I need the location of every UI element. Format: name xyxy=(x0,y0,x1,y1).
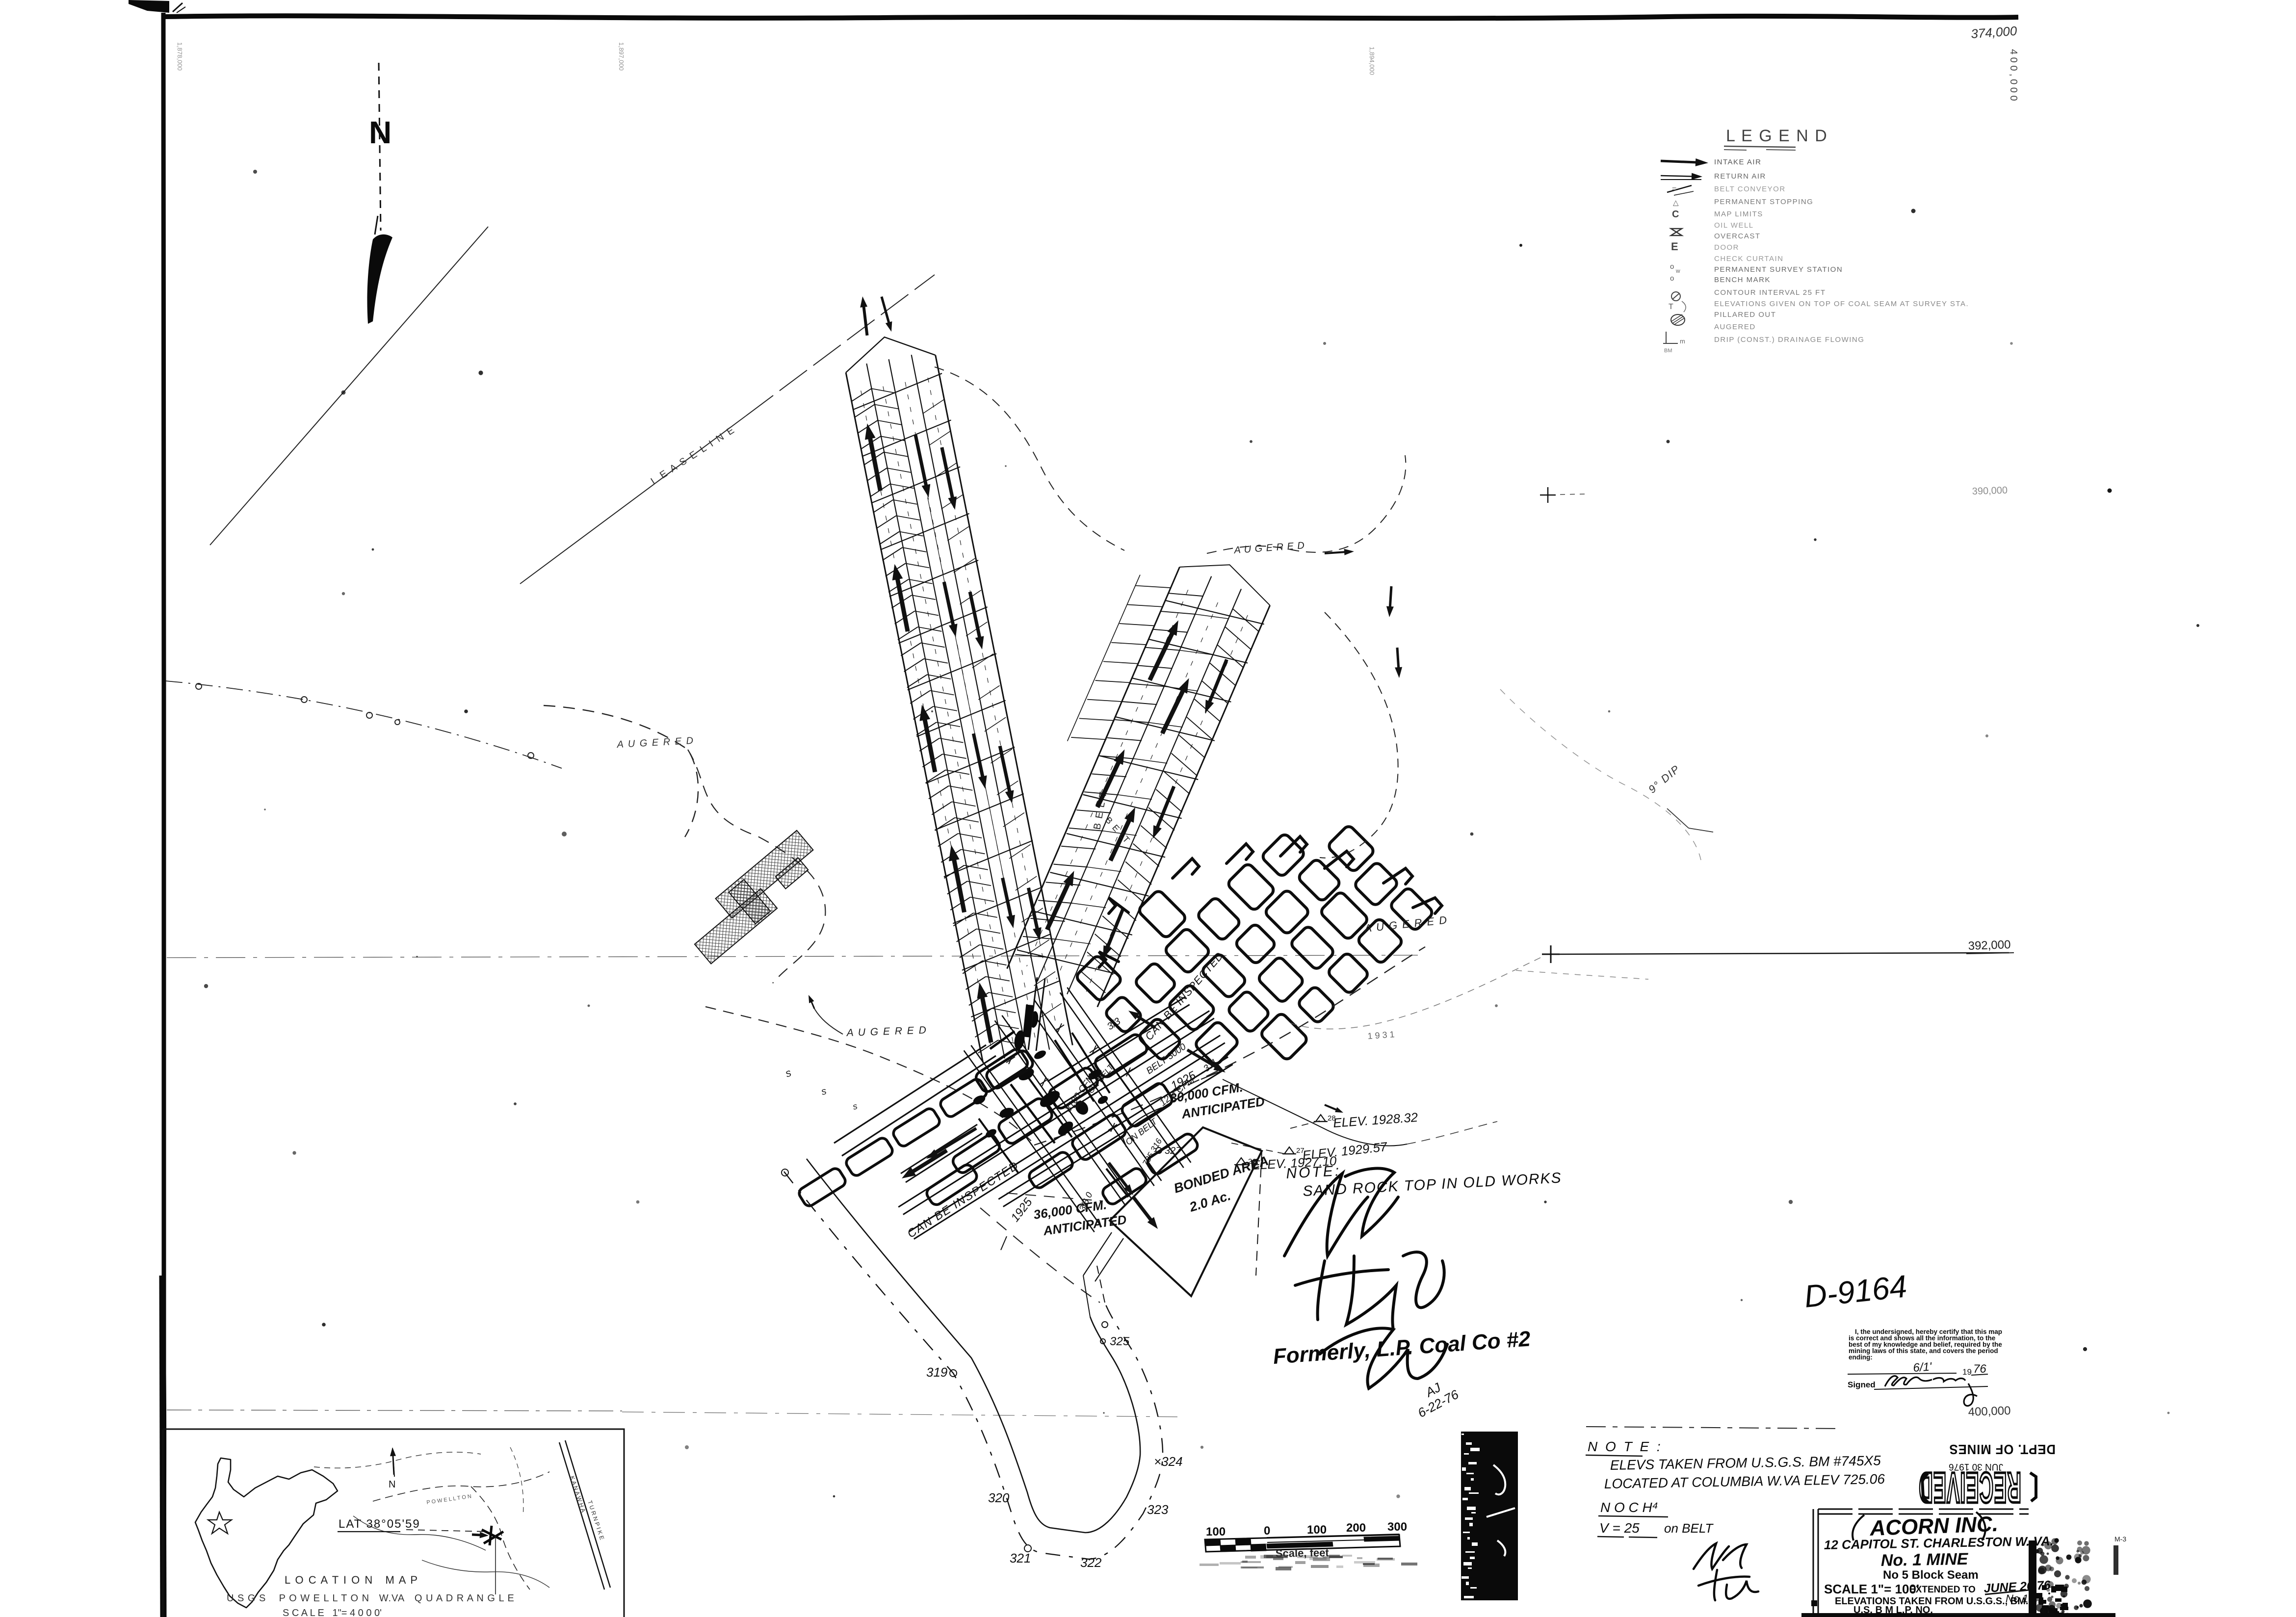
svg-text:V = 25: V = 25 xyxy=(1599,1520,1640,1536)
svg-text:BELT CONVEYOR: BELT CONVEYOR xyxy=(1714,185,1786,193)
svg-text:No. 1 MINE: No. 1 MINE xyxy=(1880,1550,1969,1570)
svg-text:MAP LIMITS: MAP LIMITS xyxy=(1714,210,1763,218)
svg-text:322: 322 xyxy=(1080,1555,1102,1570)
svg-text:S C A L E 1ʺ= 4 0 0 0ʹ: S C A L E 1ʺ= 4 0 0 0ʹ xyxy=(283,1608,382,1617)
svg-text:OVERCAST: OVERCAST xyxy=(1714,232,1761,240)
svg-text:AUGERED: AUGERED xyxy=(1714,323,1756,331)
svg-text:No 1: No 1 xyxy=(2006,1592,2028,1605)
svg-text:27: 27 xyxy=(1296,1147,1305,1155)
svg-text:323: 323 xyxy=(1147,1502,1169,1517)
svg-text:N O C H⁴: N O C H⁴ xyxy=(1600,1500,1658,1515)
svg-text:EXTENDED TO: EXTENDED TO xyxy=(1909,1585,1976,1595)
svg-text:100: 100 xyxy=(1307,1523,1327,1537)
svg-text:CHECK CURTAIN: CHECK CURTAIN xyxy=(1714,255,1783,263)
svg-text:N: N xyxy=(389,1479,395,1490)
svg-text:C: C xyxy=(1672,209,1679,220)
svg-text:1,897,000: 1,897,000 xyxy=(618,42,625,71)
svg-text:PERMANENT STOPPING: PERMANENT STOPPING xyxy=(1714,198,1813,206)
svg-text:o: o xyxy=(1670,262,1674,271)
svg-text:LAT 38°05ʹ59: LAT 38°05ʹ59 xyxy=(339,1517,420,1531)
svg-text:NOTE:: NOTE: xyxy=(1286,1163,1341,1182)
svg-text:m: m xyxy=(1680,338,1685,345)
svg-text:INTAKE AIR: INTAKE AIR xyxy=(1714,158,1761,166)
svg-text:N: N xyxy=(369,115,391,150)
svg-text:T: T xyxy=(1669,303,1673,311)
svg-text:1,894,000: 1,894,000 xyxy=(1368,47,1376,75)
svg-text:400,000: 400,000 xyxy=(1968,1404,2011,1419)
svg-text:DOOR: DOOR xyxy=(1714,243,1739,252)
svg-text:L O C A T I O N M A P: L O C A T I O N M A P xyxy=(285,1574,418,1586)
svg-text:BENCH MARK: BENCH MARK xyxy=(1714,276,1771,284)
svg-text:w: w xyxy=(1675,267,1680,274)
svg-text:DEPT. OF MINES: DEPT. OF MINES xyxy=(1949,1442,2056,1457)
svg-text:OIL WELL: OIL WELL xyxy=(1714,221,1754,230)
svg-text:BM: BM xyxy=(1664,348,1672,354)
svg-text:SCALE 1ʺ= 100ʹ: SCALE 1ʺ= 100ʹ xyxy=(1824,1582,1919,1596)
svg-text:100: 100 xyxy=(1206,1525,1226,1539)
svg-text:=: = xyxy=(1672,185,1676,193)
svg-text:392,000: 392,000 xyxy=(1968,938,2011,953)
svg-text:ELEVATIONS GIVEN ON TOP OF COA: ELEVATIONS GIVEN ON TOP OF COAL SEAM AT … xyxy=(1714,300,1969,308)
svg-text:325: 325 xyxy=(1110,1335,1130,1348)
svg-text:28: 28 xyxy=(1328,1114,1336,1122)
svg-text:319: 319 xyxy=(926,1365,947,1380)
svg-text:N O T E :: N O T E : xyxy=(1588,1439,1663,1454)
svg-text:RETURN AIR: RETURN AIR xyxy=(1714,172,1766,181)
svg-text:No 5 Block Seam: No 5 Block Seam xyxy=(1883,1568,1979,1582)
svg-text:L E G E N D: L E G E N D xyxy=(1726,127,1828,145)
svg-text:300: 300 xyxy=(1387,1520,1407,1534)
svg-text:DRIP (CONST.) DRAINAGE FLOW: DRIP (CONST.) DRAINAGE FLOWING xyxy=(1714,336,1864,344)
svg-text:△: △ xyxy=(1673,199,1679,207)
svg-text:0: 0 xyxy=(1264,1524,1270,1538)
svg-text:4 0 0 , 0 0 0: 4 0 0 , 0 0 0 xyxy=(2008,49,2019,101)
svg-text:PERMANENT SURVEY STATION: PERMANENT SURVEY STATION xyxy=(1714,265,1843,274)
svg-text:Signed: Signed xyxy=(1848,1380,1876,1389)
svg-text:390,000: 390,000 xyxy=(1972,485,2008,497)
svg-text:×324: ×324 xyxy=(1154,1454,1183,1469)
svg-text:U S G S P O W E L L T O N: U S G S P O W E L L T O N W.VA Q U A D R… xyxy=(227,1593,515,1604)
svg-text:ending:: ending: xyxy=(1849,1354,1873,1361)
svg-text:1,878,000: 1,878,000 xyxy=(176,42,183,71)
svg-text:M-3: M-3 xyxy=(2114,1535,2126,1543)
svg-text:on BELT: on BELT xyxy=(1664,1521,1714,1536)
svg-text:U.S. B M L.P. NO.: U.S. B M L.P. NO. xyxy=(1853,1605,1933,1616)
svg-text:6/1ʹ: 6/1ʹ xyxy=(1913,1360,1933,1375)
svg-text:PILLARED OUT: PILLARED OUT xyxy=(1714,311,1776,319)
svg-text:1 9 3 1: 1 9 3 1 xyxy=(1367,1029,1395,1041)
svg-text:76: 76 xyxy=(1973,1362,1986,1376)
svg-text:19: 19 xyxy=(1962,1367,1972,1377)
svg-text:o: o xyxy=(1670,274,1674,283)
svg-text:JUN 30 1976: JUN 30 1976 xyxy=(1949,1461,2003,1472)
svg-text:200: 200 xyxy=(1346,1521,1366,1535)
svg-text:E: E xyxy=(1671,240,1678,253)
svg-text:320: 320 xyxy=(988,1490,1010,1505)
svg-text:CONTOUR INTERVAL 25 FT: CONTOUR INTERVAL 25 FT xyxy=(1714,288,1826,297)
svg-text:321: 321 xyxy=(1010,1551,1031,1565)
